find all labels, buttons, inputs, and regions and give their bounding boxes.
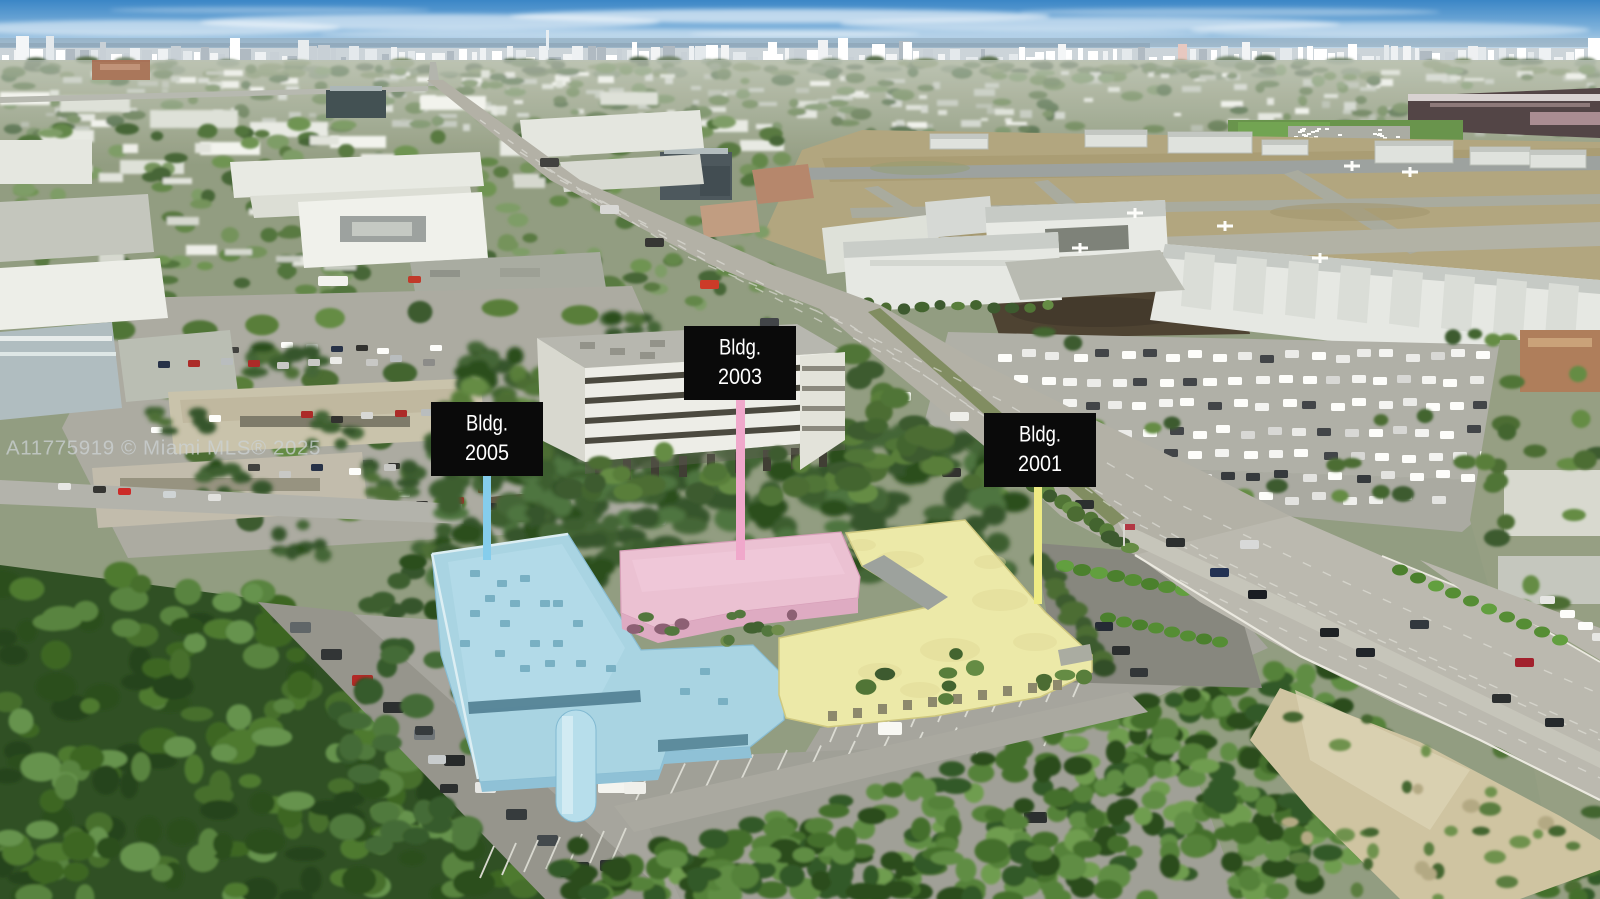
svg-text:Bldg.: Bldg. (466, 411, 508, 436)
svg-text:A11775919 © Miami MLS® 2025: A11775919 © Miami MLS® 2025 (6, 437, 321, 460)
svg-text:2003: 2003 (718, 364, 762, 389)
svg-text:2001: 2001 (1018, 451, 1062, 476)
svg-text:Bldg.: Bldg. (1019, 422, 1061, 447)
svg-text:2005: 2005 (465, 440, 509, 465)
svg-text:Bldg.: Bldg. (719, 335, 761, 360)
